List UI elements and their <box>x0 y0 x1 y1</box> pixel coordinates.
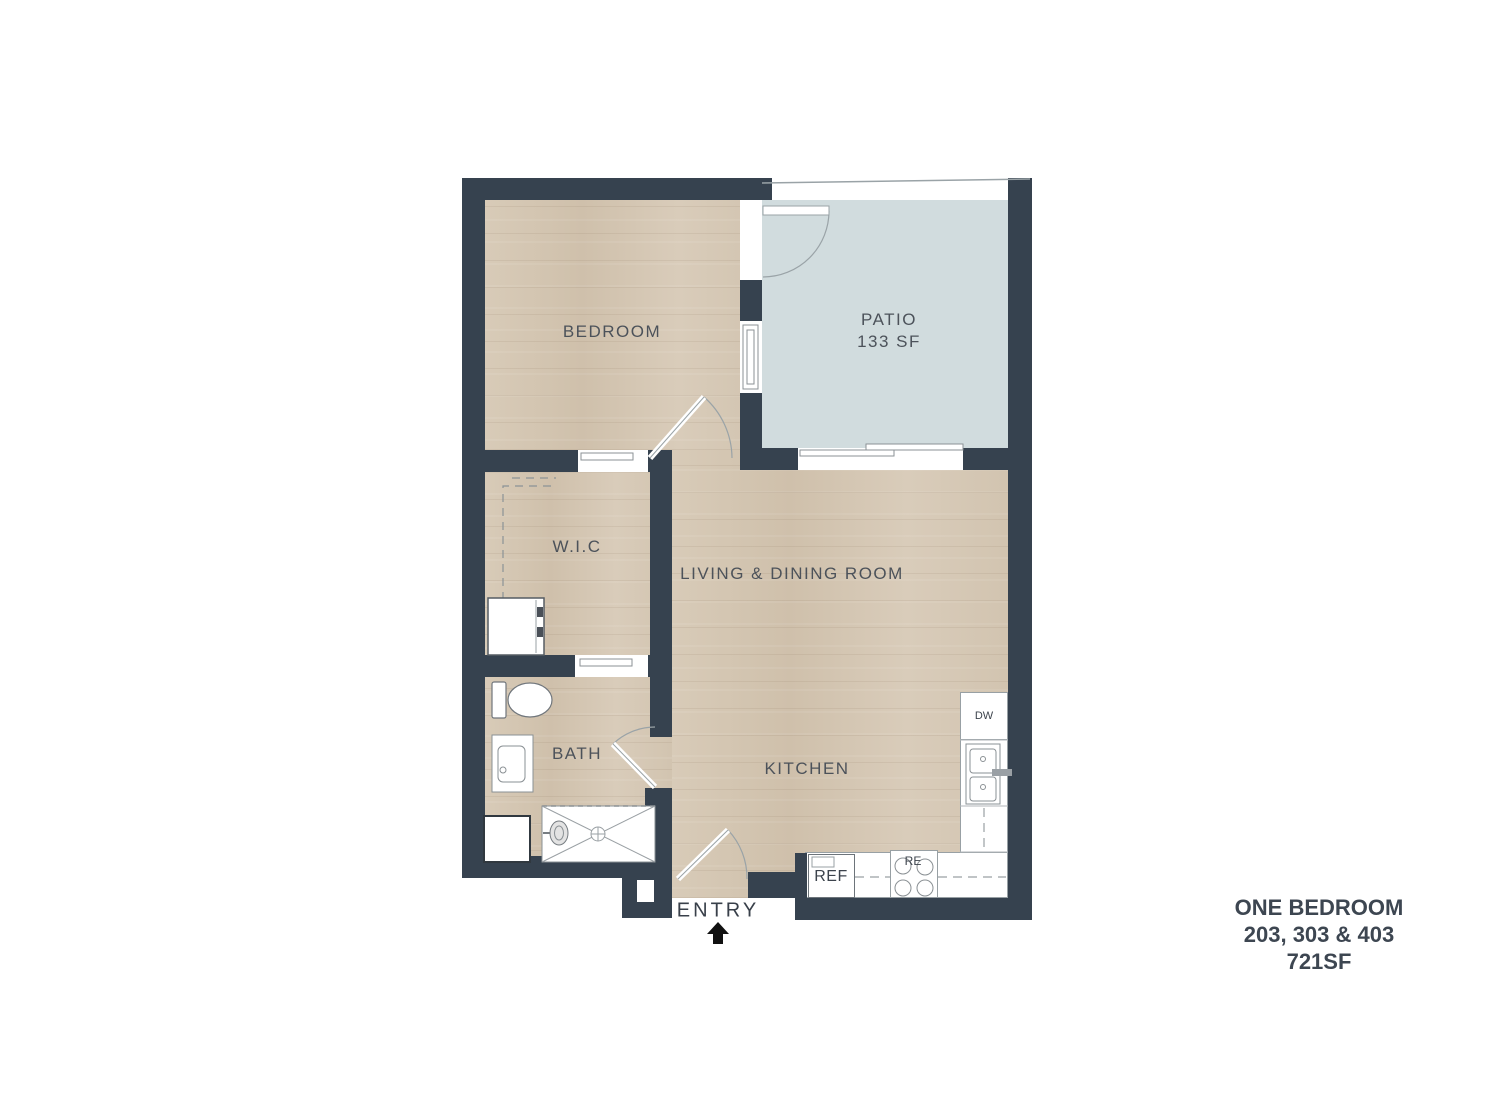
wall-bedroom-patio-lower <box>740 392 762 450</box>
entry-label: ENTRY <box>677 900 759 923</box>
entry-wall-notch <box>637 880 654 902</box>
title-block: ONE BEDROOM 203, 303 & 403 721SF <box>1159 894 1479 975</box>
kitchen-label: KITCHEN <box>764 758 849 780</box>
wall-entry-right <box>748 872 795 898</box>
living-kitchen-floor <box>672 450 1008 898</box>
wall-bedroom-patio-upper <box>740 280 762 323</box>
wall-wic-bottom-left <box>462 655 575 677</box>
wall-patio-bottom-left <box>740 448 798 470</box>
dishwasher-label: DW <box>975 710 993 722</box>
patio-edge-line <box>762 179 1030 183</box>
plan-units: 203, 303 & 403 <box>1159 921 1479 948</box>
wall-right <box>1008 178 1032 920</box>
wall-top <box>462 178 772 200</box>
patio-label: PATIO 133 SF <box>857 309 921 353</box>
entry-arrow-icon-stem <box>713 933 723 944</box>
wall-patio-bottom-right <box>963 448 1032 470</box>
wic-label: W.I.C <box>552 536 601 558</box>
wall-left <box>462 178 485 878</box>
wall-bedroom-bottom-left <box>462 450 578 472</box>
floor-plan-page: { "rooms": { "bedroom": {"label": "BEDRO… <box>0 0 1500 1100</box>
range-label: RE <box>905 854 922 868</box>
patio-label-name: PATIO <box>857 309 921 331</box>
wall-wic-right <box>650 450 672 677</box>
living-dining-label: LIVING & DINING ROOM <box>680 563 904 585</box>
refrigerator-label: REF <box>814 868 848 886</box>
wall-bath-right-upper <box>650 677 672 737</box>
bedroom-label: BEDROOM <box>563 321 661 343</box>
wall-wic-bottom-right <box>648 655 672 677</box>
bath-label: BATH <box>552 743 602 765</box>
wall-bath-right-lower <box>645 788 672 858</box>
patio-label-area: 133 SF <box>857 331 921 353</box>
plan-area: 721SF <box>1159 948 1479 975</box>
wall-bottom <box>795 898 1032 920</box>
plan-name: ONE BEDROOM <box>1159 894 1479 921</box>
